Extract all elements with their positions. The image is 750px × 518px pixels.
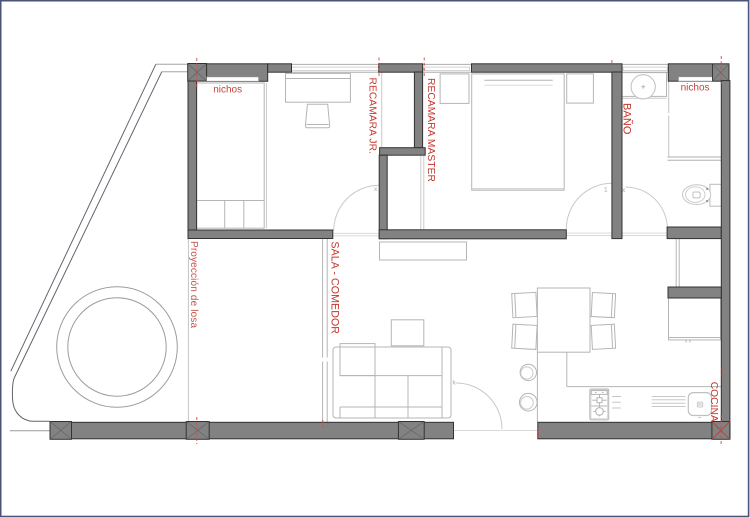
svg-text:COCINA: COCINA [708,382,719,422]
svg-text:RECAMARA MASTER: RECAMARA MASTER [425,78,436,182]
svg-text:nichos: nichos [681,83,710,94]
svg-text:nichos: nichos [213,85,242,96]
svg-text:BAÑO: BAÑO [620,103,633,135]
svg-text:RECAMARA JR.: RECAMARA JR. [366,78,377,155]
svg-text:1: 1 [604,187,608,194]
svg-text:SALA - COMEDOR: SALA - COMEDOR [328,241,340,334]
svg-text:Proyección de losa: Proyección de losa [188,241,199,328]
